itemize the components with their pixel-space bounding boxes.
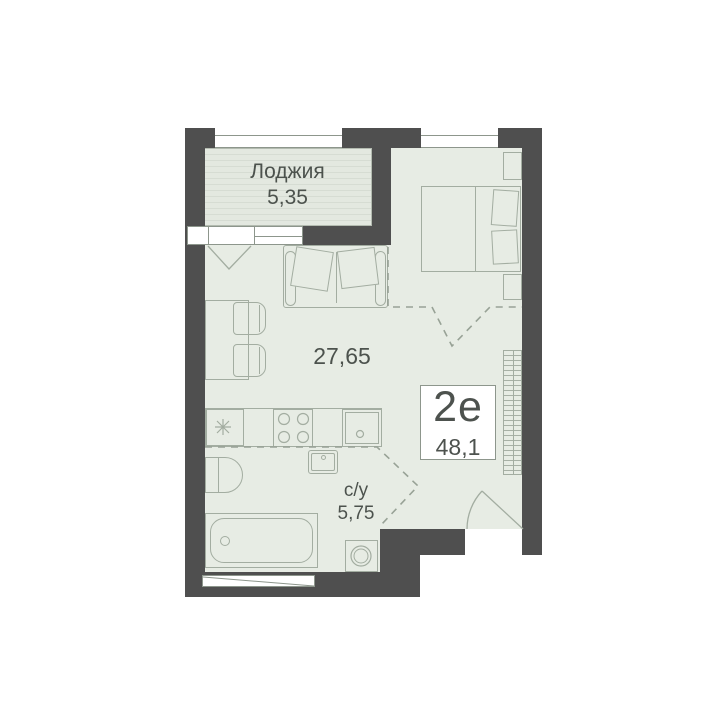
washbasin-drain [321,455,326,460]
wardrobe-divider-line [513,351,514,474]
wall-entry-right [523,529,542,555]
wall-loggia-right [372,128,391,245]
unit-type-label: 2е [433,386,483,428]
loggia-area: 5,35 [203,185,372,211]
toilet [205,457,243,493]
washbasin [308,450,338,474]
kitchen-sink-bowl [345,412,379,444]
unit-label-box: 2е 48,1 [420,385,496,460]
window-sash-line [421,135,498,136]
floor-plan: 2е 48,1 Лоджия 5,35 27,65 с/у 5,75 [0,0,726,726]
vent-window [202,575,315,587]
wall-entry-left [420,529,465,555]
kitchen-sink-unit [342,409,382,447]
chair-back-line [259,305,260,332]
kitchen-unit-star [206,409,244,446]
window-sash-line [215,135,342,136]
sofa-pillow [290,246,334,291]
unit-total-area: 48,1 [436,435,481,459]
bed-pillow [491,189,519,227]
washing-machine [345,540,378,572]
wall-step [380,529,420,597]
wall-right [522,128,542,555]
bathroom-name: с/у [316,479,396,502]
wall-loggia-bottom [303,226,372,245]
bed-mattress-line [475,187,476,271]
stove [273,409,313,447]
sofa-pillow [337,247,379,289]
bed-pillow [491,229,519,264]
loggia-name: Лоджия [203,159,372,185]
balcony-frame-line [208,227,209,244]
chair [233,302,266,335]
living-area-label: 27,65 [282,343,402,370]
wall-left [185,128,205,597]
sofa [283,245,388,308]
toilet-tank-line [218,458,219,492]
chair-back-line [259,347,260,374]
bathroom-area: 5,75 [316,502,396,525]
balcony-window-sill-line [254,236,302,237]
loggia-label: Лоджия 5,35 [203,159,372,211]
wardrobe [503,350,522,475]
bathtub [205,513,318,568]
nightstand-top [503,152,522,180]
nightstand-bottom [503,274,522,300]
bathroom-label: с/у 5,75 [316,479,396,525]
bed [421,186,521,272]
balcony-door-unit [187,226,303,245]
chair [233,344,266,377]
bathtub-drain [220,536,230,546]
window-loggia [215,128,342,148]
window-bedroom [421,128,498,148]
